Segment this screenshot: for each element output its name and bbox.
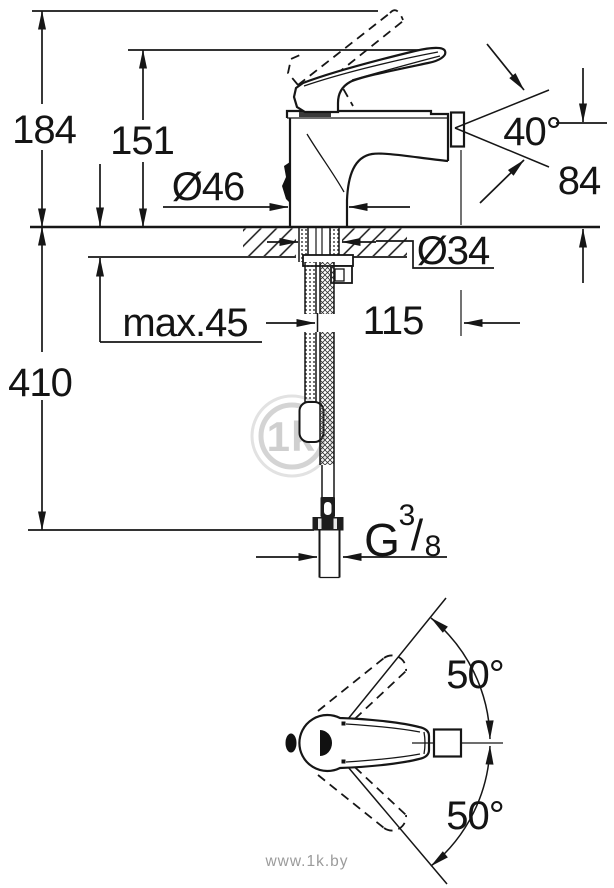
label-40deg: 40° xyxy=(503,110,561,154)
hose-nut xyxy=(313,517,344,531)
pop-up-knob-top xyxy=(286,734,297,753)
label-thread-denominator: 8 xyxy=(425,530,442,563)
label-50deg-upper: 50° xyxy=(446,653,504,697)
label-84: 84 xyxy=(558,159,601,203)
label-184: 184 xyxy=(12,108,76,152)
technical-drawing-page: 1k xyxy=(0,0,614,888)
label-thread-g: G xyxy=(364,514,400,566)
faucet-dimension-drawing: 1k xyxy=(0,0,614,888)
label-max45: max.45 xyxy=(122,301,247,345)
label-410: 410 xyxy=(8,361,72,405)
label-50deg-lower: 50° xyxy=(446,794,504,838)
label-thread-slash: / xyxy=(411,511,424,560)
watermark-site-text: www.1k.by xyxy=(264,853,348,870)
label-d34: Ø34 xyxy=(417,229,490,273)
aerator-top-view xyxy=(434,730,461,757)
label-115: 115 xyxy=(363,299,424,343)
label-151: 151 xyxy=(110,119,174,163)
label-d46: Ø46 xyxy=(172,165,245,209)
